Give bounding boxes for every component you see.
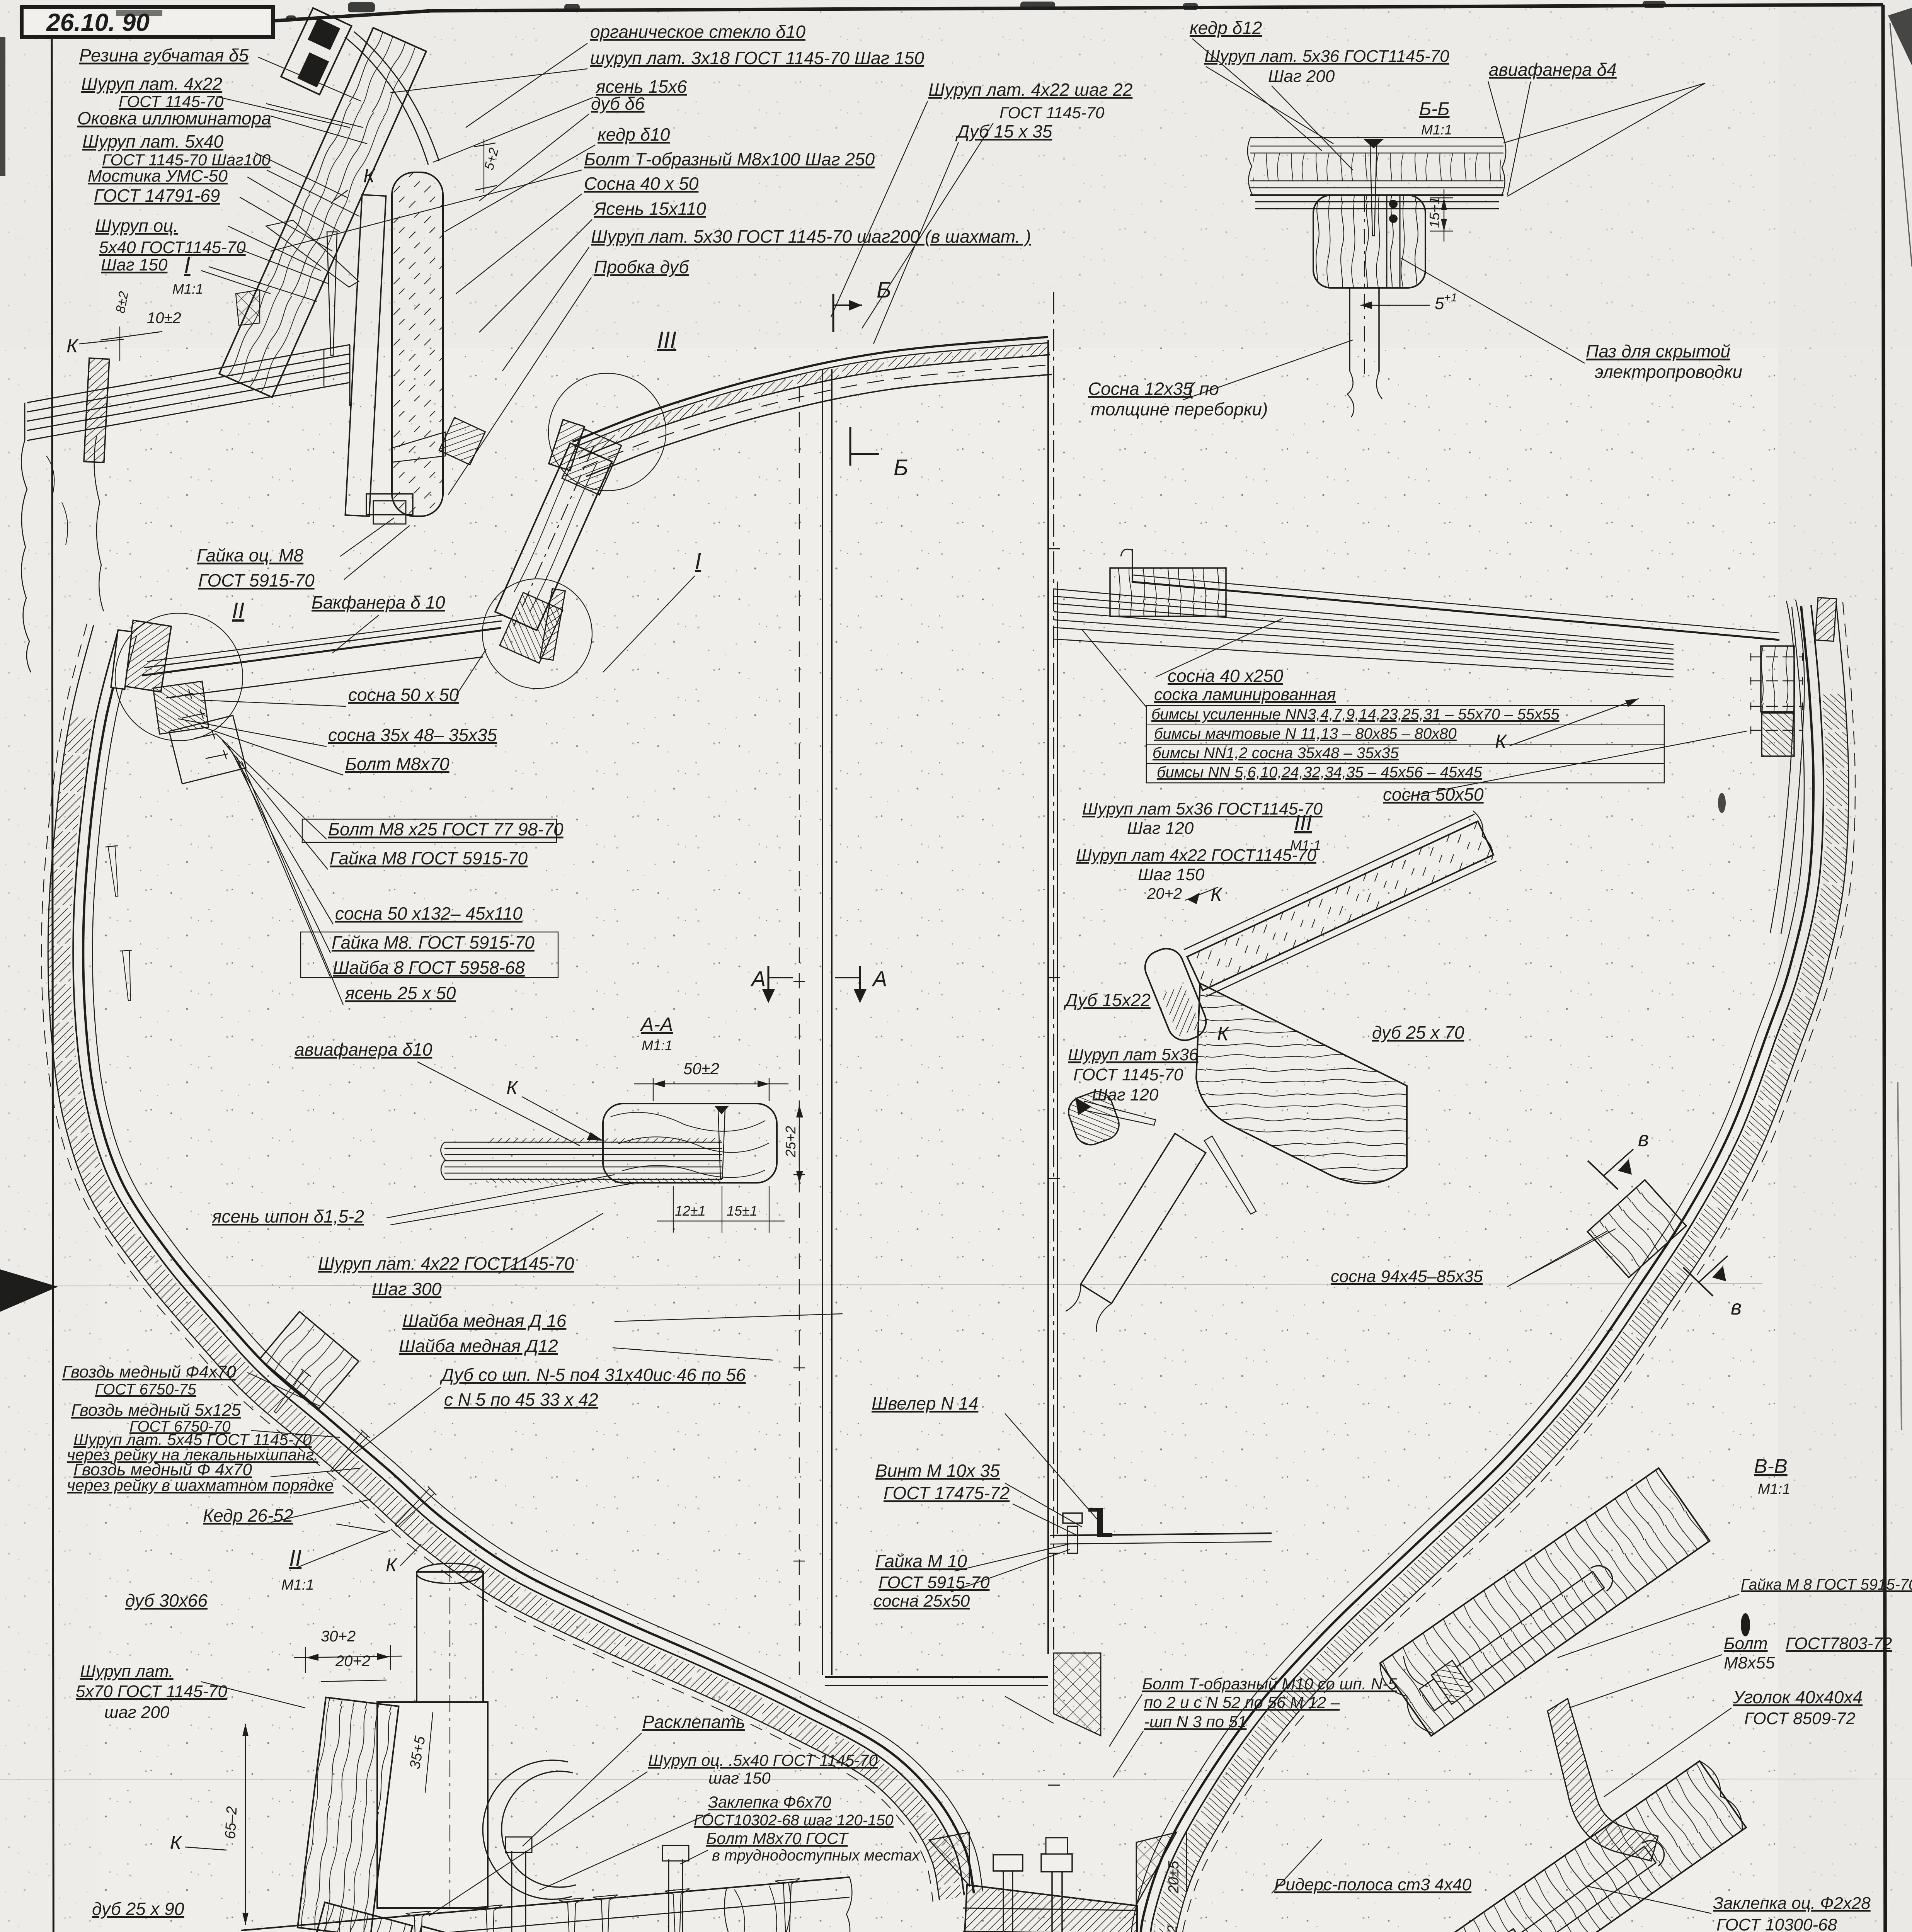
svg-text:Сосна 40 х 50: Сосна 40 х 50 xyxy=(584,173,699,194)
svg-text:Болт М8х70 ГОСТ: Болт М8х70 ГОСТ xyxy=(706,1829,849,1847)
svg-text:бимсы мачтовые N 11,13 – 80х8: бимсы мачтовые N 11,13 – 80х85 – 80х80 xyxy=(1154,725,1457,742)
svg-text:Гвоздь медный 5х125: Гвоздь медный 5х125 xyxy=(71,1401,241,1420)
svg-text:авиафанера δ4: авиафанера δ4 xyxy=(1489,60,1617,80)
svg-text:сосна 35х 48– 35х35: сосна 35х 48– 35х35 xyxy=(328,725,497,745)
svg-text:ГОСТ10302-68 шаг 120-150: ГОСТ10302-68 шаг 120-150 xyxy=(694,1812,894,1829)
svg-text:Паз для скрытой: Паз для скрытой xyxy=(1586,341,1730,361)
svg-text:ГОСТ 14791-69: ГОСТ 14791-69 xyxy=(94,185,220,206)
svg-text:А: А xyxy=(872,966,887,991)
svg-text:К: К xyxy=(66,335,79,357)
svg-text:ГОСТ 1145-70 Шаг100: ГОСТ 1145-70 Шаг100 xyxy=(102,151,271,169)
svg-text:II: II xyxy=(232,598,244,623)
svg-text:Кедр 26-52: Кедр 26-52 xyxy=(203,1505,293,1526)
svg-text:ГОСТ 1145-70: ГОСТ 1145-70 xyxy=(1073,1065,1183,1084)
svg-text:Гайка оц. М8: Гайка оц. М8 xyxy=(197,545,304,565)
svg-text:Шуруп лат. 4х22 ГОСТ1145-70: Шуруп лат. 4х22 ГОСТ1145-70 xyxy=(318,1253,574,1274)
svg-text:ясень 25 х 50: ясень 25 х 50 xyxy=(344,983,456,1003)
svg-text:Шуруп лат 4х22 ГОСТ1145-70: Шуруп лат 4х22 ГОСТ1145-70 xyxy=(1076,846,1316,865)
svg-text:20+2: 20+2 xyxy=(335,1653,370,1670)
svg-text:5х70 ГОСТ 1145-70: 5х70 ГОСТ 1145-70 xyxy=(76,1682,227,1701)
svg-text:по 2 и с N 52 по 56 М 12 –: по 2 и с N 52 по 56 М 12 – xyxy=(1144,1693,1340,1711)
svg-text:бимсы NN 5,6,10,24,32,34,35 –: бимсы NN 5,6,10,24,32,34,35 – 45х56 – 45… xyxy=(1157,764,1482,781)
svg-text:Дуб со шп. N-5 по4 31х40ис 4: Дуб со шп. N-5 по4 31х40ис 46 по 56 xyxy=(439,1365,746,1385)
svg-text:кедр δ12: кедр δ12 xyxy=(1190,18,1262,38)
svg-text:30+2: 30+2 xyxy=(321,1628,356,1645)
svg-text:Уголок 40х40х4: Уголок 40х40х4 xyxy=(1733,1687,1863,1707)
svg-text:органическое стекло δ10: органическое стекло δ10 xyxy=(590,22,805,42)
svg-text:шаг 150: шаг 150 xyxy=(708,1769,771,1787)
svg-text:25+2: 25+2 xyxy=(783,1126,799,1158)
svg-text:ГОСТ7803-72: ГОСТ7803-72 xyxy=(1786,1634,1892,1653)
svg-text:Заклепка Ф6х70: Заклепка Ф6х70 xyxy=(708,1793,831,1811)
svg-text:толщине переборки): толщине переборки) xyxy=(1091,399,1268,419)
svg-text:Гайка М8 ГОСТ 5915-70: Гайка М8 ГОСТ 5915-70 xyxy=(330,848,528,868)
svg-text:ГОСТ 5915-70: ГОСТ 5915-70 xyxy=(198,570,315,590)
svg-text:А: А xyxy=(750,966,766,991)
svg-text:Гайка М8. ГОСТ 5915-70: Гайка М8. ГОСТ 5915-70 xyxy=(332,932,535,952)
svg-text:ГОСТ 1145-70: ГОСТ 1145-70 xyxy=(999,104,1105,122)
svg-text:15±1: 15±1 xyxy=(727,1203,758,1219)
svg-text:соска ламинированная: соска ламинированная xyxy=(1154,685,1336,704)
svg-text:М1:1: М1:1 xyxy=(1758,1481,1790,1497)
svg-text:М1:1: М1:1 xyxy=(281,1577,314,1593)
svg-text:электропроводки: электропроводки xyxy=(1595,362,1742,382)
svg-text:в труднодоступных местах: в труднодоступных местах xyxy=(712,1847,921,1864)
svg-text:Шайба медная Д 16: Шайба медная Д 16 xyxy=(402,1311,567,1331)
svg-text:Гвоздь медный Ф4х70: Гвоздь медный Ф4х70 xyxy=(62,1362,236,1381)
svg-text:+1: +1 xyxy=(1444,291,1457,304)
svg-text:Шуруп лат.: Шуруп лат. xyxy=(80,1662,174,1681)
svg-text:сосна 50 х132– 45х110: сосна 50 х132– 45х110 xyxy=(335,903,523,923)
svg-text:К: К xyxy=(170,1832,182,1854)
svg-text:Шуруп лат. 4х22: Шуруп лат. 4х22 xyxy=(81,74,222,94)
svg-text:шуруп лат. 3х18 ГОСТ 1145-70 Ш: шуруп лат. 3х18 ГОСТ 1145-70 Шаг 150 xyxy=(590,48,924,68)
svg-text:Сосна 12х35: Сосна 12х35 xyxy=(1088,379,1193,399)
svg-text:сосна 40 х250: сосна 40 х250 xyxy=(1168,666,1283,686)
svg-text:через рейку в шахматном порядк: через рейку в шахматном порядке xyxy=(67,1476,334,1494)
svg-text:Гайка М 10: Гайка М 10 xyxy=(875,1551,967,1571)
svg-text:20±5: 20±5 xyxy=(1166,1861,1182,1894)
svg-text:ГОСТ 8509-72: ГОСТ 8509-72 xyxy=(1744,1709,1856,1728)
svg-text:сосна 94x45–85x35: сосна 94x45–85x35 xyxy=(1331,1267,1483,1286)
svg-text:Шаг 200: Шаг 200 xyxy=(1268,67,1335,86)
svg-text:дуб δ6: дуб δ6 xyxy=(591,94,645,114)
svg-text:Б-Б: Б-Б xyxy=(1419,99,1449,119)
svg-text:А-А: А-А xyxy=(640,1014,673,1035)
svg-text:ГОСТ 5915-70: ГОСТ 5915-70 xyxy=(879,1573,990,1592)
svg-text:Швелер N 14: Швелер N 14 xyxy=(872,1393,978,1413)
svg-text:Мостика УМС-50: Мостика УМС-50 xyxy=(88,167,228,185)
svg-text:Резина губчатая δ5: Резина губчатая δ5 xyxy=(79,45,249,65)
svg-text:сосна 50х50: сосна 50х50 xyxy=(1383,784,1484,804)
svg-text:Оковка иллюминатора: Оковка иллюминатора xyxy=(77,108,271,128)
svg-text:III: III xyxy=(657,327,676,353)
svg-text:Болт М8 х25 ГОСТ 77 98-70: Болт М8 х25 ГОСТ 77 98-70 xyxy=(328,819,564,839)
svg-text:20+2: 20+2 xyxy=(1147,885,1182,902)
svg-text:Шуруп лат 5х36: Шуруп лат 5х36 xyxy=(1068,1045,1199,1064)
svg-text:ясень шпон δ1,5-2: ясень шпон δ1,5-2 xyxy=(211,1206,364,1226)
svg-text:ГОСТ 10300-68: ГОСТ 10300-68 xyxy=(1716,1915,1837,1932)
svg-text:-шп N 3 по 51: -шп N 3 по 51 xyxy=(1144,1713,1247,1731)
svg-text:В-В: В-В xyxy=(1754,1455,1788,1478)
svg-text:Болт Т-образный М10 со шп. N-5: Болт Т-образный М10 со шп. N-5 xyxy=(1142,1675,1397,1693)
svg-text:Ридерс-полоса ст3 4х40: Ридерс-полоса ст3 4х40 xyxy=(1274,1875,1472,1894)
svg-text:К: К xyxy=(1217,1023,1229,1044)
svg-text:ГОСТ 1145-70: ГОСТ 1145-70 xyxy=(119,92,224,111)
svg-text:сосна 25х50: сосна 25х50 xyxy=(873,1592,970,1611)
svg-text:I: I xyxy=(695,549,701,574)
svg-text:5х40 ГОСТ1145-70: 5х40 ГОСТ1145-70 xyxy=(99,238,246,257)
svg-text:М1:1: М1:1 xyxy=(172,281,203,297)
svg-text:дуб 25 х 90: дуб 25 х 90 xyxy=(92,1899,184,1919)
svg-text:бимсы NN1,2 сосна 35х48 – 3: бимсы NN1,2 сосна 35х48 – 35х35 xyxy=(1153,745,1399,762)
svg-text:ГОСТ 6750-75: ГОСТ 6750-75 xyxy=(95,1381,196,1398)
svg-text:К: К xyxy=(386,1555,398,1575)
svg-text:Шаг 150: Шаг 150 xyxy=(101,255,168,274)
svg-text:кедр δ10: кедр δ10 xyxy=(598,124,670,145)
svg-text:Шаг 300: Шаг 300 xyxy=(372,1279,442,1299)
svg-text:М1:1: М1:1 xyxy=(1421,122,1452,138)
svg-text:Шуруп лат. 4х22 шаг 22: Шуруп лат. 4х22 шаг 22 xyxy=(928,80,1132,100)
svg-text:Дуб 15 х 35: Дуб 15 х 35 xyxy=(955,121,1052,141)
svg-text:К: К xyxy=(1495,731,1507,752)
svg-text:Шаг 120: Шаг 120 xyxy=(1092,1085,1159,1104)
svg-text:авиафанера δ10: авиафанера δ10 xyxy=(295,1039,432,1060)
svg-text:шаг 200: шаг 200 xyxy=(104,1703,170,1722)
svg-text:дуб 30х66: дуб 30х66 xyxy=(125,1590,208,1611)
svg-text:Болт Т-образный М8х100 Шаг 250: Болт Т-образный М8х100 Шаг 250 xyxy=(584,149,875,169)
svg-text:Шайба медная Д12: Шайба медная Д12 xyxy=(399,1336,558,1356)
svg-text:Шаг 120: Шаг 120 xyxy=(1127,819,1194,838)
svg-text:II: II xyxy=(289,1546,301,1571)
svg-text:Б: Б xyxy=(894,455,908,480)
svg-text:дуб 25 х 70: дуб 25 х 70 xyxy=(1372,1022,1464,1043)
svg-text:М1:1: М1:1 xyxy=(642,1037,673,1053)
svg-text:К: К xyxy=(1211,884,1223,905)
svg-text:Шуруп лат 5х36 ГОСТ1145-70: Шуруп лат 5х36 ГОСТ1145-70 xyxy=(1082,799,1323,818)
svg-text:Пробка дуб: Пробка дуб xyxy=(594,257,690,277)
svg-text:в: в xyxy=(1638,1128,1649,1151)
svg-text:Болт М8х70: Болт М8х70 xyxy=(345,754,449,774)
svg-text:Гайка М 8 ГОСТ 5915-70: Гайка М 8 ГОСТ 5915-70 xyxy=(1741,1576,1912,1593)
svg-text:Шайба 8 ГОСТ 5958-68: Шайба 8 ГОСТ 5958-68 xyxy=(333,957,525,978)
svg-text:К: К xyxy=(363,165,376,187)
svg-text:сосна 50 х 50: сосна 50 х 50 xyxy=(348,685,459,705)
svg-text:в: в xyxy=(1731,1296,1742,1319)
svg-text:Шуруп лат. 5х30 ГОСТ 1145-70: Шуруп лат. 5х30 ГОСТ 1145-70 шаг200 (в ш… xyxy=(591,226,1031,247)
svg-text:Болт: Болт xyxy=(1724,1634,1768,1653)
svg-text:с N 5 по 45 33 х 42: с N 5 по 45 33 х 42 xyxy=(444,1389,598,1410)
svg-text:5: 5 xyxy=(1435,294,1444,313)
svg-text:К: К xyxy=(506,1077,519,1099)
svg-text:40±2: 40±2 xyxy=(1165,1925,1180,1932)
svg-text:Шуруп оц.: Шуруп оц. xyxy=(95,216,178,236)
svg-text:Шуруп лат. 5х40: Шуруп лат. 5х40 xyxy=(82,131,224,151)
svg-text:65–2: 65–2 xyxy=(222,1806,240,1840)
svg-text:12±1: 12±1 xyxy=(675,1203,706,1219)
svg-text:ГОСТ 17475-72: ГОСТ 17475-72 xyxy=(884,1483,1010,1503)
svg-text:Шуруп оц. .5х40 ГОСТ 1145-70: Шуруп оц. .5х40 ГОСТ 1145-70 xyxy=(648,1751,878,1769)
svg-text:Б: Б xyxy=(877,277,891,303)
svg-text:Дуб 15х22: Дуб 15х22 xyxy=(1063,990,1151,1010)
svg-text:Заклепка оц. Ф2х28: Заклепка оц. Ф2х28 xyxy=(1713,1894,1871,1913)
svg-text:15+1: 15+1 xyxy=(1427,197,1442,228)
svg-text:Ясень 15х110: Ясень 15х110 xyxy=(593,199,706,219)
svg-text:Бакфанера δ 10: Бакфанера δ 10 xyxy=(312,592,445,612)
svg-text:Расклепать: Расклепать xyxy=(642,1712,745,1732)
svg-text:50±2: 50±2 xyxy=(683,1060,719,1078)
svg-text:М8х55: М8х55 xyxy=(1724,1653,1775,1672)
svg-text:Шаг 150: Шаг 150 xyxy=(1138,865,1205,884)
svg-text:Шуруп лат. 5х36 ГОСТ1145-70: Шуруп лат. 5х36 ГОСТ1145-70 xyxy=(1204,47,1449,66)
svg-text:Винт М 10х 35: Винт М 10х 35 xyxy=(875,1461,1000,1481)
svg-text:бимсы усиленные NN3,4,7,9,14,2: бимсы усиленные NN3,4,7,9,14,23,25,31 – … xyxy=(1151,706,1560,723)
svg-text:10±2: 10±2 xyxy=(147,310,181,327)
